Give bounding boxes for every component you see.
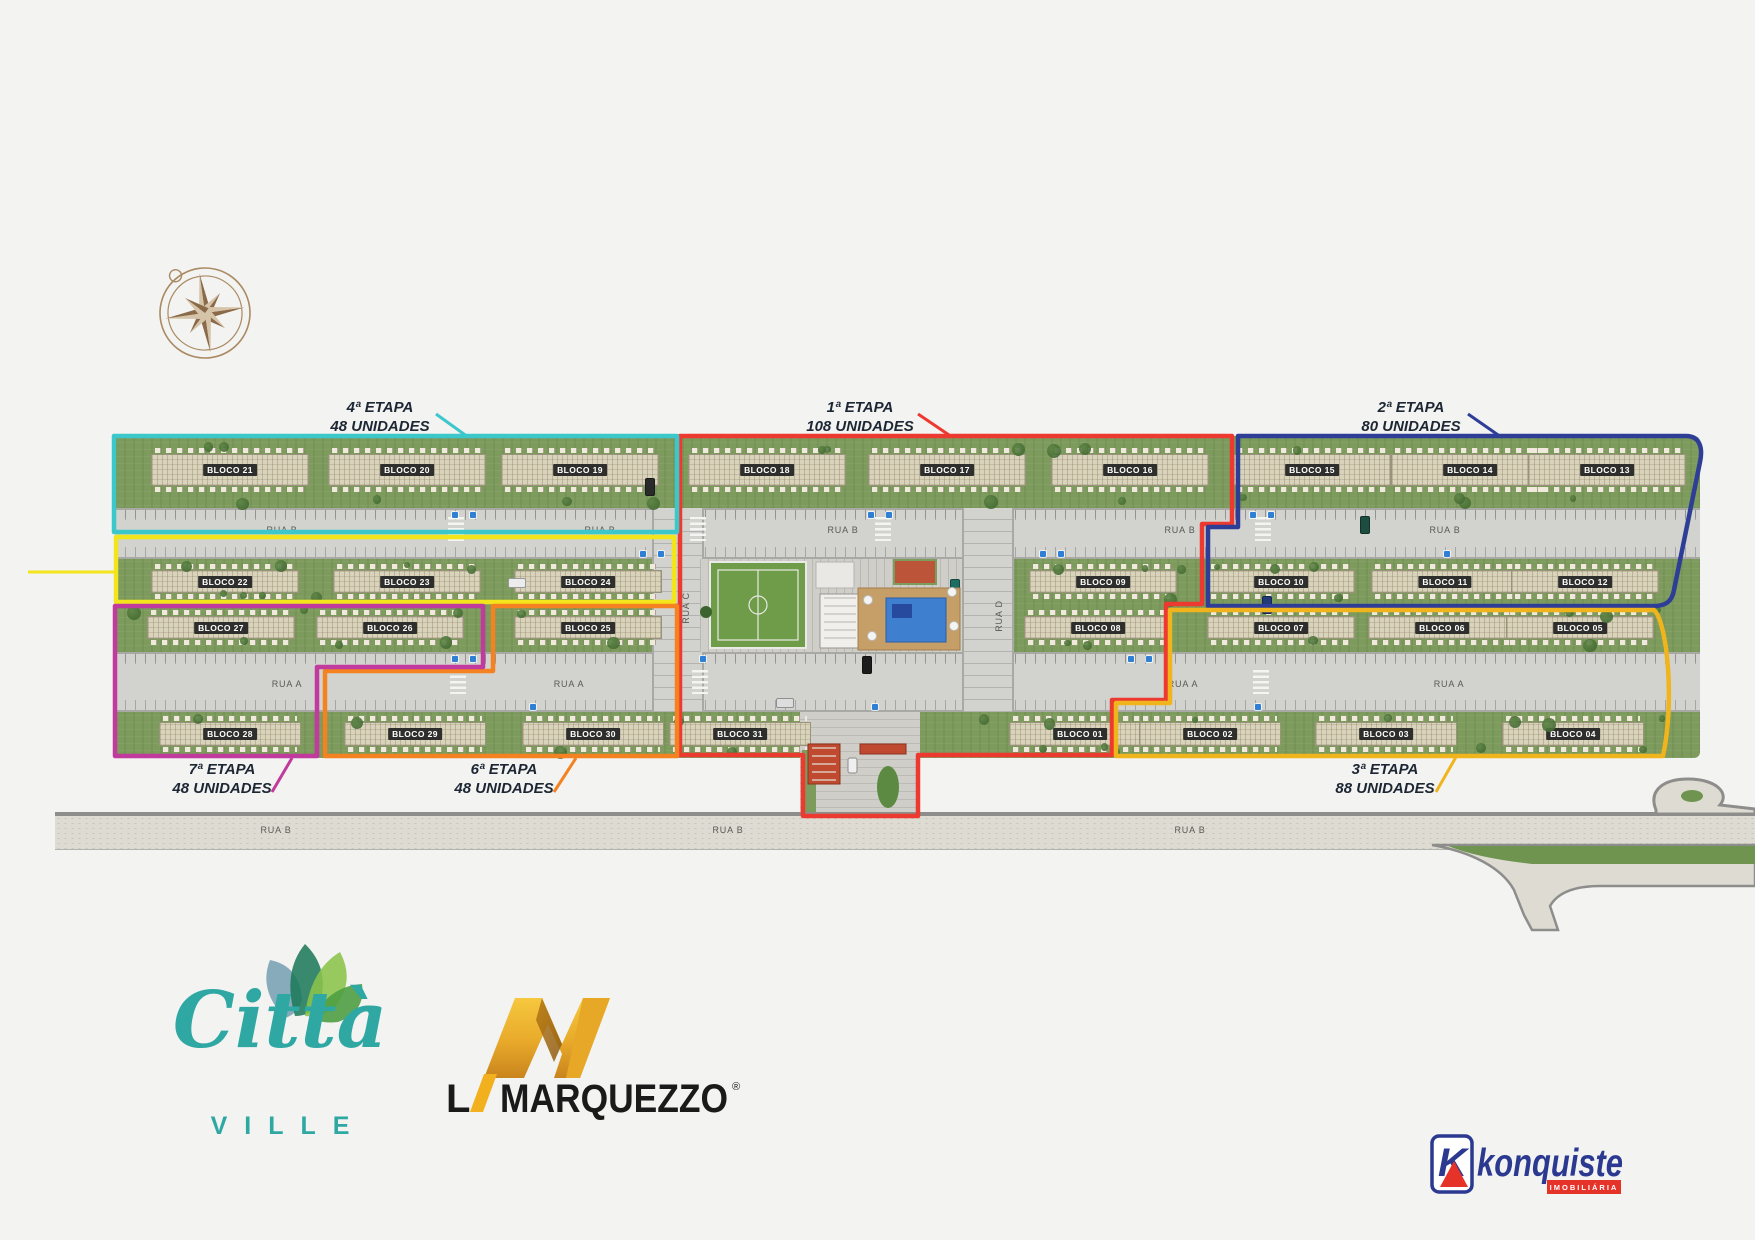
marquezzo-slash-icon <box>470 1074 497 1112</box>
parking-stubs <box>1211 594 1351 599</box>
block-label: BLOCO 23 <box>380 576 434 588</box>
block-bloco-23: BLOCO 23 <box>333 564 481 599</box>
tree <box>1542 718 1556 732</box>
etapa-label-6: 6ª ETAPA48 UNIDADES <box>454 760 553 798</box>
parking-sign-icon <box>658 551 664 557</box>
road-rua-b-upper <box>115 508 1700 559</box>
citta-sub-wordmark: VILLE <box>150 1112 410 1141</box>
etapa-leader-7 <box>272 758 292 792</box>
parking-stubs <box>673 747 807 752</box>
tree <box>1384 714 1392 722</box>
road-label-rua-b: RUA B <box>1429 525 1460 535</box>
parking-stubs <box>1143 747 1277 752</box>
block-label: BLOCO 16 <box>1103 464 1157 476</box>
tree <box>1164 593 1177 606</box>
parking-stubs <box>518 640 658 645</box>
block-bloco-05: BLOCO 05 <box>1506 610 1654 645</box>
tree <box>607 637 620 650</box>
parking-sign-icon <box>1268 512 1274 518</box>
parking-stubs <box>1510 640 1650 645</box>
block-bloco-27: BLOCO 27 <box>147 610 295 645</box>
tree <box>219 442 229 452</box>
tree <box>236 498 248 510</box>
block-bloco-11: BLOCO 11 <box>1371 564 1519 599</box>
block-bloco-29: BLOCO 29 <box>344 716 486 752</box>
konquiste-badge <box>1432 1136 1472 1192</box>
block-label: BLOCO 18 <box>740 464 794 476</box>
parking-stubs <box>1395 487 1545 492</box>
parking-stubs <box>872 448 1022 453</box>
car <box>776 698 794 708</box>
tree <box>467 565 476 574</box>
parking-stubs <box>692 487 842 492</box>
block-label: BLOCO 17 <box>920 464 974 476</box>
block-bloco-08: BLOCO 08 <box>1024 610 1172 645</box>
block-bloco-25: BLOCO 25 <box>514 610 662 645</box>
etapa-stage: 1ª ETAPA <box>806 398 914 417</box>
block-label: BLOCO 02 <box>1183 728 1237 740</box>
block-bloco-14: BLOCO 14 <box>1391 448 1549 492</box>
parking-stubs <box>1211 564 1351 569</box>
car <box>862 656 872 674</box>
road-label-rua-c: RUA C <box>681 592 691 624</box>
marquezzo-m-icon <box>484 998 610 1078</box>
block-label: BLOCO 28 <box>203 728 257 740</box>
parking-stubs <box>1033 594 1173 599</box>
block-bloco-20: BLOCO 20 <box>328 448 486 492</box>
road-rua-d <box>962 508 1014 712</box>
parking-stubs <box>163 716 297 721</box>
block-bloco-24: BLOCO 24 <box>514 564 662 599</box>
tree <box>1012 443 1025 456</box>
etapa-leader-4 <box>436 414 468 437</box>
block-label: BLOCO 26 <box>363 622 417 634</box>
etapa-label-3: 3ª ETAPA88 UNIDADES <box>1335 760 1434 798</box>
parking-stubs <box>1055 448 1205 453</box>
parking-stubs <box>872 487 1022 492</box>
registered-mark: ® <box>732 1081 740 1093</box>
parking-sign-icon <box>1040 551 1046 557</box>
block-label: BLOCO 05 <box>1553 622 1607 634</box>
parking-stubs <box>518 564 658 569</box>
block-label: BLOCO 25 <box>561 622 615 634</box>
tree <box>554 746 567 759</box>
parking-stubs <box>155 448 305 453</box>
etapa-units: 48 UNIDADES <box>172 779 271 798</box>
etapa-units: 88 UNIDADES <box>1335 779 1434 798</box>
crosswalk <box>875 517 891 541</box>
parking-stubs <box>1506 716 1640 721</box>
block-bloco-21: BLOCO 21 <box>151 448 309 492</box>
block-label: BLOCO 19 <box>553 464 607 476</box>
parking-stubs <box>1515 594 1655 599</box>
tree <box>1639 746 1646 753</box>
tree <box>373 495 381 503</box>
parking-sign-icon <box>1255 704 1261 710</box>
block-label: BLOCO 07 <box>1254 622 1308 634</box>
car <box>645 478 655 496</box>
parking-sign-icon <box>452 512 458 518</box>
etapa-units: 48 UNIDADES <box>330 417 429 436</box>
block-bloco-07: BLOCO 07 <box>1207 610 1355 645</box>
tree <box>311 592 322 603</box>
block-bloco-17: BLOCO 17 <box>868 448 1026 492</box>
parking-stubs <box>505 448 655 453</box>
block-label: BLOCO 13 <box>1580 464 1634 476</box>
tree <box>1083 641 1092 650</box>
citta-wordmark: Città <box>150 975 410 1066</box>
tree <box>1079 443 1091 455</box>
etapa-units: 48 UNIDADES <box>454 779 553 798</box>
compass-rose <box>154 260 256 364</box>
block-label: BLOCO 11 <box>1418 576 1471 588</box>
block-label: BLOCO 24 <box>561 576 615 588</box>
block-bloco-09: BLOCO 09 <box>1029 564 1177 599</box>
tree <box>1214 564 1220 570</box>
parking-sign-icon <box>868 512 874 518</box>
parking-stubs <box>1237 448 1387 453</box>
block-label: BLOCO 29 <box>388 728 442 740</box>
block-bloco-31: BLOCO 31 <box>669 716 811 752</box>
marquezzo-logo: L MARQUEZZO ® <box>446 998 740 1121</box>
tree <box>1308 636 1317 645</box>
konquiste-word: konquiste <box>1477 1142 1623 1185</box>
parking-stubs <box>332 448 482 453</box>
parking-sign-icon <box>470 656 476 662</box>
block-label: BLOCO 21 <box>203 464 257 476</box>
car <box>1360 516 1370 534</box>
crosswalk <box>1255 517 1271 541</box>
parking-stubs <box>1211 640 1351 645</box>
tree <box>1053 564 1064 575</box>
parking-sign-icon <box>886 512 892 518</box>
tree <box>727 747 737 757</box>
tree <box>127 606 141 620</box>
block-bloco-18: BLOCO 18 <box>688 448 846 492</box>
block-label: BLOCO 31 <box>713 728 767 740</box>
road-label-rua-a: RUA A <box>1168 679 1199 689</box>
tree <box>1600 610 1613 623</box>
block-bloco-02: BLOCO 02 <box>1139 716 1281 752</box>
parking-stubs <box>348 747 482 752</box>
parking-stubs <box>1532 487 1682 492</box>
block-bloco-04: BLOCO 04 <box>1502 716 1644 752</box>
crosswalk <box>448 517 464 541</box>
parking-sign-icon <box>452 656 458 662</box>
car <box>950 579 960 597</box>
parking-stubs <box>1013 747 1147 752</box>
parking-sign-icon <box>700 656 706 662</box>
road-label-rua-b-highway: RUA B <box>712 825 743 835</box>
parking-sign-icon <box>640 551 646 557</box>
etapa-label-7: 7ª ETAPA48 UNIDADES <box>172 760 271 798</box>
crosswalk <box>1253 670 1269 694</box>
konquiste-logo: K konquiste IMOBILIÁRIA <box>1432 1136 1623 1194</box>
etapa-stage: 4ª ETAPA <box>330 398 429 417</box>
etapa-stage: 6ª ETAPA <box>454 760 553 779</box>
parking-stubs <box>163 747 297 752</box>
block-bloco-13: BLOCO 13 <box>1528 448 1686 492</box>
parking-sign-icon <box>1058 551 1064 557</box>
crosswalk <box>450 670 466 694</box>
parking-stubs <box>1319 747 1453 752</box>
parking-sign-icon <box>1128 656 1134 662</box>
car <box>1262 596 1272 614</box>
road-label-rua-d: RUA D <box>994 600 1004 632</box>
parking-stubs <box>1506 747 1640 752</box>
masterplan-canvas: BLOCO 21BLOCO 20BLOCO 19BLOCO 18BLOCO 17… <box>0 0 1755 1240</box>
etapa-leader-1 <box>918 414 952 437</box>
tree <box>647 497 660 510</box>
parking-stubs <box>1375 564 1515 569</box>
tree <box>259 592 265 598</box>
konquiste-sub: IMOBILIÁRIA <box>1550 1183 1619 1192</box>
etapa-label-2: 2ª ETAPA80 UNIDADES <box>1361 398 1460 436</box>
marquezzo-word: MARQUEZZO <box>500 1077 728 1121</box>
road-label-rua-a: RUA A <box>554 679 585 689</box>
parking-stubs <box>1510 610 1650 615</box>
block-label: BLOCO 06 <box>1415 622 1469 634</box>
etapa-label-4: 4ª ETAPA48 UNIDADES <box>330 398 429 436</box>
parking-stubs <box>518 610 658 615</box>
road-label-rua-b: RUA B <box>1164 525 1195 535</box>
road-label-rua-b-highway: RUA B <box>1174 825 1205 835</box>
block-label: BLOCO 15 <box>1285 464 1339 476</box>
block-label: BLOCO 14 <box>1443 464 1497 476</box>
block-label: BLOCO 01 <box>1053 728 1107 740</box>
konquiste-triangle-icon <box>1440 1161 1468 1187</box>
parking-stubs <box>1532 448 1682 453</box>
road-label-rua-a: RUA A <box>1434 679 1465 689</box>
road-label-rua-b: RUA B <box>266 525 297 535</box>
tree <box>193 714 203 724</box>
tree <box>1064 640 1070 646</box>
parking-stubs <box>1395 448 1545 453</box>
parking-stubs <box>1211 610 1351 615</box>
parking-stubs <box>526 747 660 752</box>
parking-stubs <box>505 487 655 492</box>
parking-stubs <box>320 610 460 615</box>
tree <box>1659 715 1665 721</box>
parking-stubs <box>1515 564 1655 569</box>
crosswalk <box>690 517 706 541</box>
road-label-rua-b: RUA B <box>584 525 615 535</box>
block-label: BLOCO 03 <box>1359 728 1413 740</box>
tree <box>1583 639 1596 652</box>
block-bloco-12: BLOCO 12 <box>1511 564 1659 599</box>
parking-sign-icon <box>1444 551 1450 557</box>
etapa-leader-3 <box>1436 757 1456 792</box>
etapa-leader-2 <box>1468 414 1501 437</box>
parking-stubs <box>1237 487 1387 492</box>
konquiste-badge-letter: K <box>1438 1141 1470 1185</box>
block-bloco-28: BLOCO 28 <box>159 716 301 752</box>
tree <box>517 610 525 618</box>
etapa-label-1: 1ª ETAPA108 UNIDADES <box>806 398 914 436</box>
parking-stubs <box>348 716 482 721</box>
block-bloco-01: BLOCO 01 <box>1009 716 1151 752</box>
block-label: BLOCO 08 <box>1071 622 1125 634</box>
tree <box>1177 565 1186 574</box>
parking-stubs <box>332 487 482 492</box>
block-label: BLOCO 20 <box>380 464 434 476</box>
club-plaza <box>700 559 962 652</box>
block-bloco-30: BLOCO 30 <box>522 716 664 752</box>
block-label: BLOCO 27 <box>194 622 248 634</box>
block-label: BLOCO 10 <box>1254 576 1308 588</box>
parking-stubs <box>1028 610 1168 615</box>
car <box>508 578 526 588</box>
road-label-rua-b-highway: RUA B <box>260 825 291 835</box>
tree <box>984 495 998 509</box>
highway-right-end <box>1432 779 1755 930</box>
road-highway-rua-b <box>55 812 1755 850</box>
block-bloco-16: BLOCO 16 <box>1051 448 1209 492</box>
parking-sign-icon <box>1250 512 1256 518</box>
parking-stubs <box>518 594 658 599</box>
parking-stubs <box>151 640 291 645</box>
etapa-units: 108 UNIDADES <box>806 417 914 436</box>
parking-stubs <box>1013 716 1147 721</box>
parking-stubs <box>1055 487 1205 492</box>
tree <box>240 637 248 645</box>
parking-stubs <box>155 487 305 492</box>
parking-stubs <box>1028 640 1168 645</box>
tree <box>1476 743 1486 753</box>
tree <box>1039 745 1047 753</box>
parking-stubs <box>151 610 291 615</box>
parking-sign-icon <box>530 704 536 710</box>
road-label-rua-a: RUA A <box>272 679 303 689</box>
parking-stubs <box>673 716 807 721</box>
etapa-stage: 3ª ETAPA <box>1335 760 1434 779</box>
block-bloco-10: BLOCO 10 <box>1207 564 1355 599</box>
block-label: BLOCO 09 <box>1076 576 1130 588</box>
parking-sign-icon <box>1146 656 1152 662</box>
etapa-units: 80 UNIDADES <box>1361 417 1460 436</box>
parking-stubs <box>1143 716 1277 721</box>
block-label: BLOCO 22 <box>198 576 252 588</box>
block-label: BLOCO 30 <box>566 728 620 740</box>
tree <box>979 714 990 725</box>
parking-stubs <box>1375 594 1515 599</box>
marquezzo-prefix: L <box>446 1077 470 1121</box>
parking-stubs <box>526 716 660 721</box>
tree <box>674 717 684 727</box>
parking-stubs <box>337 594 477 599</box>
block-bloco-19: BLOCO 19 <box>501 448 659 492</box>
block-bloco-06: BLOCO 06 <box>1368 610 1516 645</box>
parking-stubs <box>1372 610 1512 615</box>
block-label: BLOCO 12 <box>1558 576 1612 588</box>
konquiste-sub-bar <box>1547 1180 1621 1194</box>
entrance-corridor <box>800 712 920 816</box>
tree <box>1270 564 1280 574</box>
parking-stubs <box>1372 640 1512 645</box>
etapa-stage: 7ª ETAPA <box>172 760 271 779</box>
etapa-leader-6 <box>554 758 576 792</box>
tree <box>1239 494 1247 502</box>
parking-sign-icon <box>872 704 878 710</box>
etapa-stage: 2ª ETAPA <box>1361 398 1460 417</box>
tree <box>1570 495 1576 501</box>
tree <box>204 442 213 451</box>
parking-sign-icon <box>470 512 476 518</box>
crosswalk <box>692 670 708 694</box>
parking-stubs <box>155 564 295 569</box>
block-bloco-15: BLOCO 15 <box>1233 448 1391 492</box>
road-label-rua-b: RUA B <box>827 525 858 535</box>
tree <box>1044 718 1055 729</box>
